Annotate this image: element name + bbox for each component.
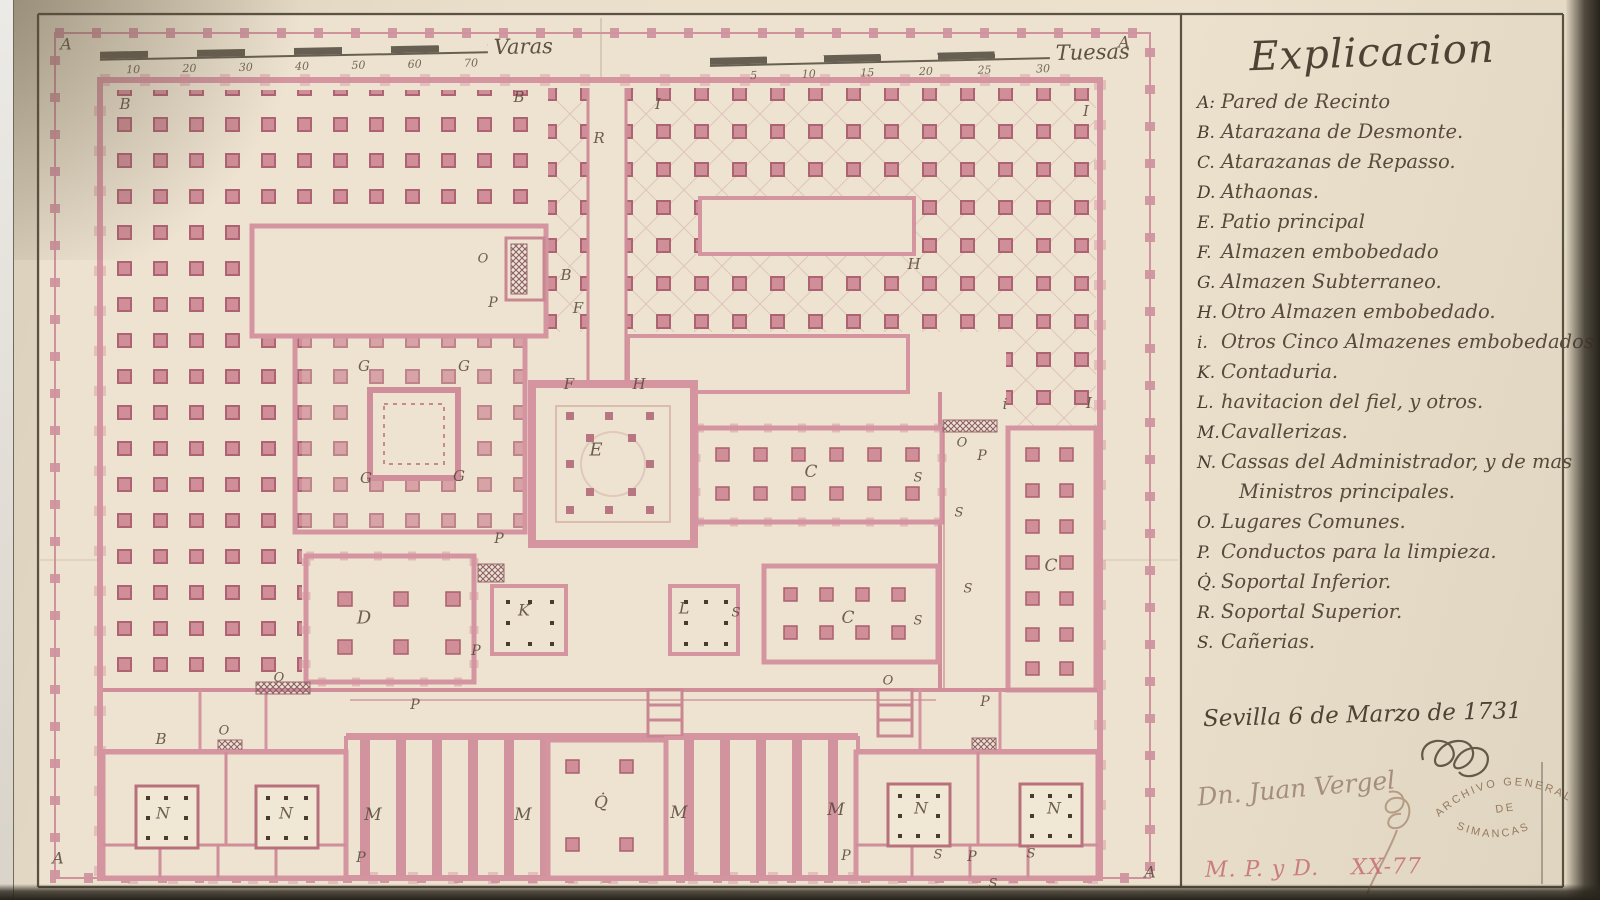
scan-edge-bottom [0,884,1600,900]
legend-entry: A:Pared de Recinto [1197,90,1563,120]
legend-entry: D.Athaonas. [1197,180,1563,210]
scale-tick: 60 [408,58,422,71]
scale-tick: 20 [919,65,933,78]
legend-title: Explicacion [1180,23,1563,82]
scale-tick: 10 [802,67,816,80]
legend-entry: B.Atarazana de Desmonte. [1197,120,1563,150]
legend-entry: i.Otros Cinco Almazenes embobedados [1197,330,1563,360]
mill-room [306,556,474,682]
lower-portico [548,740,666,878]
latrine-hatch [511,244,527,294]
pencil-mark [1541,762,1543,884]
scale-tick: 5 [750,69,757,82]
courtyard [532,384,694,544]
legend-entry: M.Cavallerizas. [1197,420,1563,450]
scale-tick: 30 [239,61,253,74]
scale-tick: 70 [464,56,478,69]
svg-text:SIMANCAS: SIMANCAS [1453,810,1532,846]
latrine-hatch [256,682,310,694]
stamp-line3: SIMANCAS [1453,810,1532,846]
well-square [370,390,458,478]
varas-label: Varas [494,34,554,59]
scale-tick: 50 [351,59,365,72]
scanned-sheet: AAAABBBBRIIiIHHFFGGGGECCCKLDMMMMNNNNQ̇OO… [0,0,1600,900]
legend-entry: F.Almazen embobedado [1197,240,1563,270]
scale-tick: 20 [182,62,196,75]
legend-entry: P.Conductos para la limpieza. [1197,540,1563,570]
legend-entry: K.Contaduria. [1197,360,1563,390]
legend-entry: Q̇.Soportal Inferior. [1197,570,1563,600]
legend-entry: E.Patio principal [1197,210,1563,240]
legend-entry: H.Otro Almazen embobedado. [1197,300,1563,330]
scan-edge-right [1566,0,1600,900]
scale-tick: 30 [1036,62,1050,75]
legend-entry-continuation: Ministros principales. [1197,480,1563,510]
legend-list: A:Pared de RecintoB.Atarazana de Desmont… [1181,90,1563,660]
stamp-line2: DE [1495,801,1517,816]
legend-entry: G.Almazen Subterraneo. [1197,270,1563,300]
scale-tick: 15 [860,66,874,79]
legend-panel: Explicacion A:Pared de RecintoB.Atarazan… [1181,14,1563,887]
scale-tick: 25 [977,63,991,76]
legend-entry: S.Cañerias. [1197,630,1563,660]
catalog-reference: M. P. y D. XX-77 [1205,854,1422,883]
legend-entry: C.Atarazanas de Repasso. [1197,150,1563,180]
scan-edge-left [0,0,14,900]
scale-tick: 10 [126,63,140,76]
date-line: Sevilla 6 de Marzo de 1731 [1203,698,1522,732]
scale-tick: 40 [295,60,309,73]
legend-entry: L.havitacion del fiel, y otros. [1197,390,1563,420]
tuesas-label: Tuesas [1055,39,1130,65]
legend-entry: R.Soportal Superior. [1197,600,1563,630]
legend-entry: O.Lugares Comunes. [1197,510,1563,540]
legend-entry: N.Cassas del Administrador, y de mas [1197,450,1563,480]
